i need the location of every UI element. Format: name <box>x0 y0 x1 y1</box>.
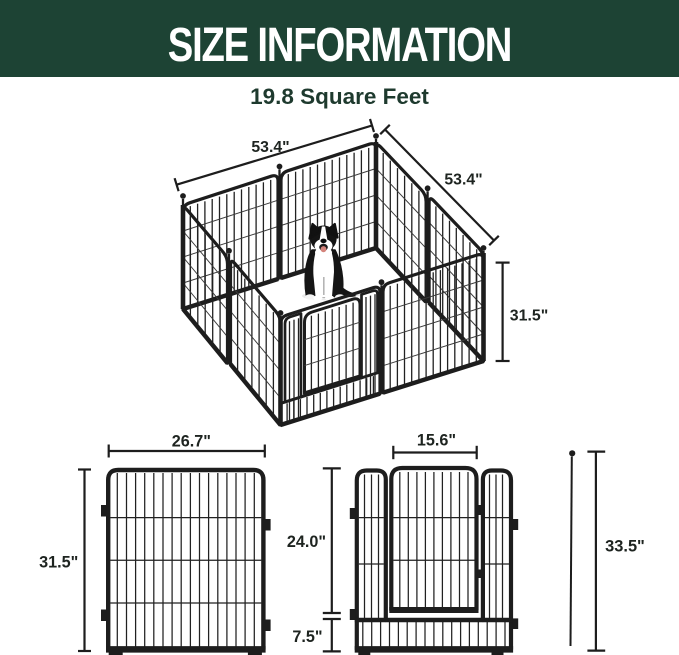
svg-text:7.5": 7.5" <box>292 628 322 646</box>
svg-text:31.5": 31.5" <box>39 554 78 572</box>
svg-text:53.4": 53.4" <box>444 172 482 189</box>
svg-text:53.4": 53.4" <box>251 139 289 156</box>
svg-text:26.7": 26.7" <box>172 433 211 451</box>
svg-text:15.6": 15.6" <box>417 431 456 449</box>
svg-text:33.5": 33.5" <box>605 538 645 556</box>
svg-text:24.0": 24.0" <box>287 533 326 551</box>
svg-text:31.5": 31.5" <box>510 308 548 325</box>
